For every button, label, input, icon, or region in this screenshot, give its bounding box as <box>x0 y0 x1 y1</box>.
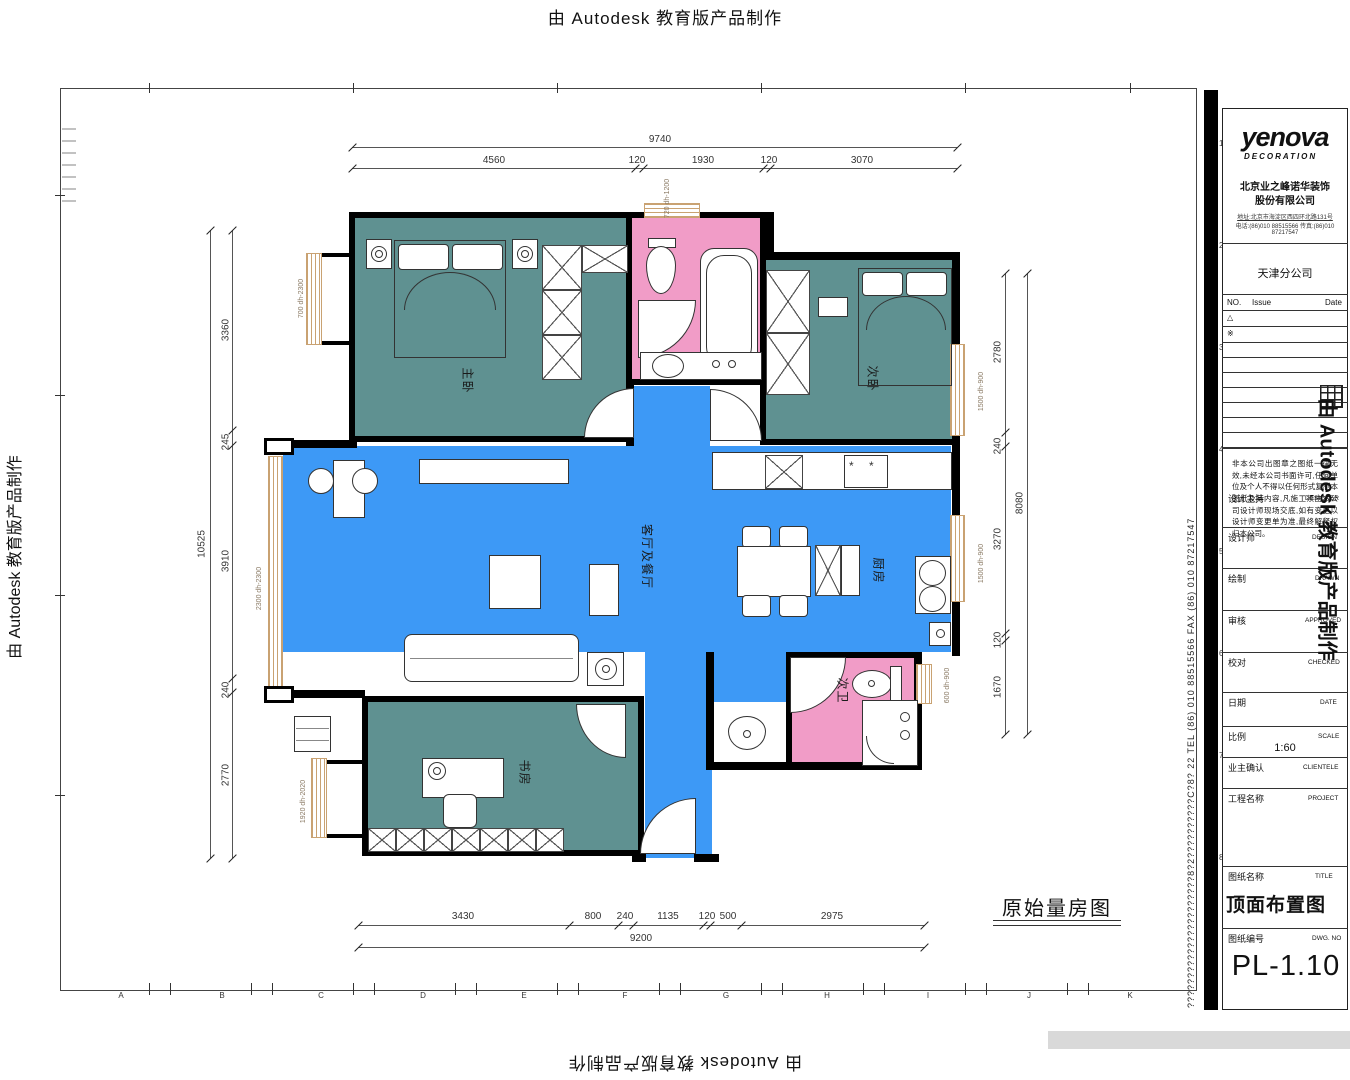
dim-value: 3360 <box>221 319 232 341</box>
rev-row-symbol: ※ <box>1227 329 1234 338</box>
plan-caption-underline <box>993 920 1121 926</box>
tb-divider <box>1222 372 1348 373</box>
frame-tick <box>353 83 354 93</box>
faucet-dot <box>728 360 736 368</box>
bathtub-inner <box>706 255 752 365</box>
company-name2: 股份有限公司 <box>1228 192 1342 207</box>
window-second-bedroom <box>950 344 965 436</box>
dim-value: 1135 <box>657 911 679 922</box>
dim-value: 3430 <box>452 911 474 922</box>
frame-tick <box>149 983 150 995</box>
pillow <box>906 272 947 296</box>
watermark-top: 由 Autodesk 教育版产品制作 <box>400 4 930 29</box>
frame-tick <box>557 983 558 995</box>
dim-value: 9200 <box>630 933 652 944</box>
drain-dot <box>936 629 945 638</box>
frame-tick <box>272 983 273 995</box>
field-cn: 图纸编号 <box>1228 932 1264 945</box>
zone-letter: D <box>420 991 426 1000</box>
dim-line <box>352 168 957 169</box>
round-chair <box>308 468 334 494</box>
frame-tick <box>55 595 65 596</box>
tb-divider <box>1222 310 1348 311</box>
dim-value: 240 <box>617 911 634 922</box>
kitchen-counter-top <box>712 452 952 490</box>
dim-value: 1930 <box>692 155 714 166</box>
sideboard <box>841 545 860 596</box>
dim-value: 500 <box>720 911 737 922</box>
frame-tick <box>353 983 354 995</box>
speaker-cone <box>602 665 610 673</box>
frame-tick <box>1088 983 1089 995</box>
wall <box>322 341 352 345</box>
shower-control <box>900 712 910 722</box>
window-kitchen <box>950 515 965 602</box>
shower-control <box>900 730 910 740</box>
rev-row-symbol: △ <box>1227 313 1233 322</box>
bookshelf-hatch <box>424 828 452 852</box>
pillow <box>398 244 449 270</box>
dim-value: 240 <box>993 438 1004 455</box>
zone-letter: F <box>623 991 628 1000</box>
zone-letter: C <box>318 991 324 1000</box>
dim-value: 4560 <box>483 155 505 166</box>
dim-value: 800 <box>585 911 602 922</box>
dim-line <box>232 230 233 858</box>
frame-corner-marks <box>62 128 76 208</box>
dim-value: 10525 <box>197 530 208 558</box>
frame-tick <box>782 983 783 995</box>
tb-divider <box>1222 326 1348 327</box>
watermark-right: 由 Autodesk 教育版产品制作 <box>1315 380 1344 680</box>
wardrobe-hatch <box>766 270 810 333</box>
wall <box>327 760 365 764</box>
room-label-second-bath: 次卫 <box>835 677 852 703</box>
tb-divider <box>1222 243 1348 244</box>
dim-value: 2770 <box>221 764 232 786</box>
wall <box>766 252 960 260</box>
tb-divider <box>1222 788 1348 789</box>
dim-value: 2780 <box>993 341 1004 363</box>
company-name: 北京业之峰诺华装饰 <box>1228 178 1342 193</box>
sink-bowl <box>919 560 946 586</box>
dining-chair <box>779 526 808 548</box>
window-tag: 1500 dh-900 <box>978 372 985 411</box>
burner-icon: * <box>869 459 874 473</box>
field-cn: 日期 <box>1228 696 1246 709</box>
dim-value: 8080 <box>1015 492 1026 514</box>
desk-chair <box>443 794 477 828</box>
frame-tick <box>374 983 375 995</box>
sink-bowl <box>919 586 946 612</box>
window-master-bay <box>306 253 322 345</box>
dim-value: 120 <box>993 632 1004 649</box>
end-table <box>589 564 619 616</box>
window-tag: 700 dh-2300 <box>298 279 305 318</box>
wardrobe-hatch <box>542 290 582 335</box>
cabinet-line <box>296 740 329 741</box>
field-en: DWG. NO <box>1312 935 1341 942</box>
frame-tick <box>170 983 171 995</box>
wall-pier <box>264 438 294 455</box>
wall <box>632 854 646 862</box>
dim-value: 9740 <box>649 134 671 145</box>
rev-col-no: NO. <box>1227 298 1241 307</box>
field-cn: 审核 <box>1228 614 1246 627</box>
watermark-left: 由 Autodesk 教育版产品制作 <box>1 407 25 707</box>
wardrobe-hatch <box>582 245 628 273</box>
branch-name: 天津分公司 <box>1228 265 1342 281</box>
wall <box>322 253 352 257</box>
room-label-study: 书房 <box>517 759 534 785</box>
toilet-tank <box>890 666 902 702</box>
window-study-bay <box>311 758 327 838</box>
frame-tick <box>986 983 987 995</box>
watermark-bottom: 由 Autodesk 教育版产品制作 <box>420 1052 950 1077</box>
tv-cabinet <box>419 459 569 484</box>
sheet-edge-bar <box>1204 90 1218 1010</box>
field-en: DATE <box>1320 699 1337 706</box>
corridor-floor <box>634 386 710 452</box>
dim-value: 3270 <box>993 528 1004 550</box>
lamp-icon <box>375 250 383 258</box>
company-logo-sub: DECORATION <box>1244 152 1344 161</box>
room-label-kitchen: 厨房 <box>871 557 888 583</box>
shoe-cabinet <box>294 716 331 752</box>
lamp-icon <box>521 250 529 258</box>
dim-line <box>352 147 957 148</box>
cabinet-line <box>296 728 329 729</box>
frame-tick <box>1130 83 1131 93</box>
dining-chair <box>779 595 808 617</box>
scale-value: 1:60 <box>1228 742 1342 754</box>
wardrobe-hatch <box>766 333 810 395</box>
side-contact-text: ??????????????????????8?2??????????C?8? … <box>1186 228 1196 1008</box>
sofa-seatline <box>410 658 573 659</box>
zone-letter: K <box>1127 991 1132 1000</box>
zone-letter: B <box>219 991 224 1000</box>
faucet-dot <box>712 360 720 368</box>
window-tag: 1920 dh-2020 <box>300 780 307 823</box>
dim-line <box>1005 273 1006 735</box>
round-chair <box>352 468 378 494</box>
bookshelf-hatch <box>536 828 564 852</box>
frame-tick <box>965 983 966 995</box>
field-cn: 图纸名称 <box>1228 870 1264 883</box>
dining-table <box>737 546 811 597</box>
field-en: PROJECT <box>1308 795 1338 802</box>
bookshelf-hatch <box>452 828 480 852</box>
frame-tick <box>557 83 558 93</box>
frame-tick <box>659 983 660 995</box>
washbasin <box>652 354 684 378</box>
window-tag: 720 dh-1200 <box>664 179 671 218</box>
toilet-dot <box>868 680 875 687</box>
tb-divider <box>1222 342 1348 343</box>
tb-divider <box>1222 726 1348 727</box>
tb-divider <box>1222 294 1348 295</box>
kitchen-cabinet-hatch <box>765 455 803 489</box>
dim-value: 1670 <box>993 676 1004 698</box>
overlay-bar <box>1048 1031 1350 1049</box>
drawing-number: PL-1.10 <box>1226 950 1346 983</box>
frame-tick <box>149 83 150 93</box>
bookshelf-hatch <box>480 828 508 852</box>
dim-value: 2975 <box>821 911 843 922</box>
field-en: SCALE <box>1318 733 1339 740</box>
zone-letter: A <box>118 991 123 1000</box>
dim-line <box>358 947 925 948</box>
frame-tick <box>965 83 966 93</box>
frame-tick <box>55 395 65 396</box>
frame-tick <box>455 983 456 995</box>
bookshelf-hatch <box>368 828 396 852</box>
pillow <box>452 244 503 270</box>
wardrobe-hatch <box>542 335 582 380</box>
frame-tick <box>578 983 579 995</box>
wall <box>327 834 365 838</box>
dining-chair <box>742 526 771 548</box>
zone-letter: E <box>521 991 526 1000</box>
window-tag: 1500 dh-900 <box>978 544 985 583</box>
frame-tick <box>55 795 65 796</box>
frame-tick <box>251 983 252 995</box>
frame-tick <box>863 983 864 995</box>
field-cn: 设计主持 <box>1228 492 1264 505</box>
desk-lamp-icon <box>433 767 441 775</box>
window-balcony <box>268 456 283 690</box>
plan-caption: 原始量房图 <box>993 892 1121 921</box>
tb-divider <box>1222 692 1348 693</box>
field-cn: 设计师 <box>1228 531 1255 544</box>
bookshelf-hatch <box>396 828 424 852</box>
dim-line <box>210 230 211 858</box>
window-tag: 2300 dh-2300 <box>256 567 263 610</box>
sideboard-hatch <box>815 545 841 596</box>
bookshelf-hatch <box>508 828 536 852</box>
dim-line <box>1027 273 1028 735</box>
tb-divider <box>1222 757 1348 758</box>
frame-tick <box>761 983 762 995</box>
dim-value: 3070 <box>851 155 873 166</box>
zone-letter: G <box>723 991 729 1000</box>
field-cn: 校对 <box>1228 656 1246 669</box>
field-cn: 工程名称 <box>1228 792 1264 805</box>
dim-line <box>358 925 925 926</box>
field-en: CLIENTELE <box>1303 764 1338 771</box>
zone-letter: J <box>1027 991 1031 1000</box>
room-label-master: 主卧 <box>460 367 477 393</box>
pillow <box>862 272 903 296</box>
wall <box>694 854 719 862</box>
tb-divider <box>1222 866 1348 867</box>
company-info: 地址:北京市海淀区西四环北路131号 <box>1228 212 1342 221</box>
tb-divider <box>1222 357 1348 358</box>
zone-letter: I <box>927 991 929 1000</box>
frame-tick <box>1067 983 1068 995</box>
burner-icon: * <box>849 459 854 473</box>
company-logo: yenova <box>1230 122 1340 153</box>
wall-pier <box>264 686 294 703</box>
zone-letter: H <box>824 991 830 1000</box>
dim-value: 3910 <box>221 550 232 572</box>
frame-tick <box>680 983 681 995</box>
rev-col-date: Date <box>1325 298 1342 307</box>
coffee-table <box>489 555 541 609</box>
dining-chair <box>742 595 771 617</box>
room-label-second-bedroom: 次卧 <box>865 365 882 391</box>
wardrobe-hatch <box>542 245 582 290</box>
washbasin-dot <box>743 730 751 738</box>
rev-col-issue: Issue <box>1252 298 1271 307</box>
field-cn: 绘制 <box>1228 572 1246 585</box>
room-label-living-dining: 客厅及餐厅 <box>639 524 656 589</box>
company-info2: 电话:(86)010 88515566 传真:(86)010 87217547 <box>1228 221 1342 236</box>
window-tag: 600 dh-900 <box>944 668 951 703</box>
field-cn: 业主确认 <box>1228 761 1264 774</box>
frame-tick <box>476 983 477 995</box>
window-bath-main <box>644 203 700 218</box>
drawing-title: 顶面布置图 <box>1226 890 1344 917</box>
field-en: TITLE <box>1315 873 1333 880</box>
wall <box>706 652 714 770</box>
window-bath-second <box>916 664 932 704</box>
frame-tick <box>761 83 762 93</box>
nightstand <box>818 297 848 317</box>
hall-connector-floor <box>712 652 788 702</box>
frame-tick <box>884 983 885 995</box>
tb-divider <box>1222 928 1348 929</box>
